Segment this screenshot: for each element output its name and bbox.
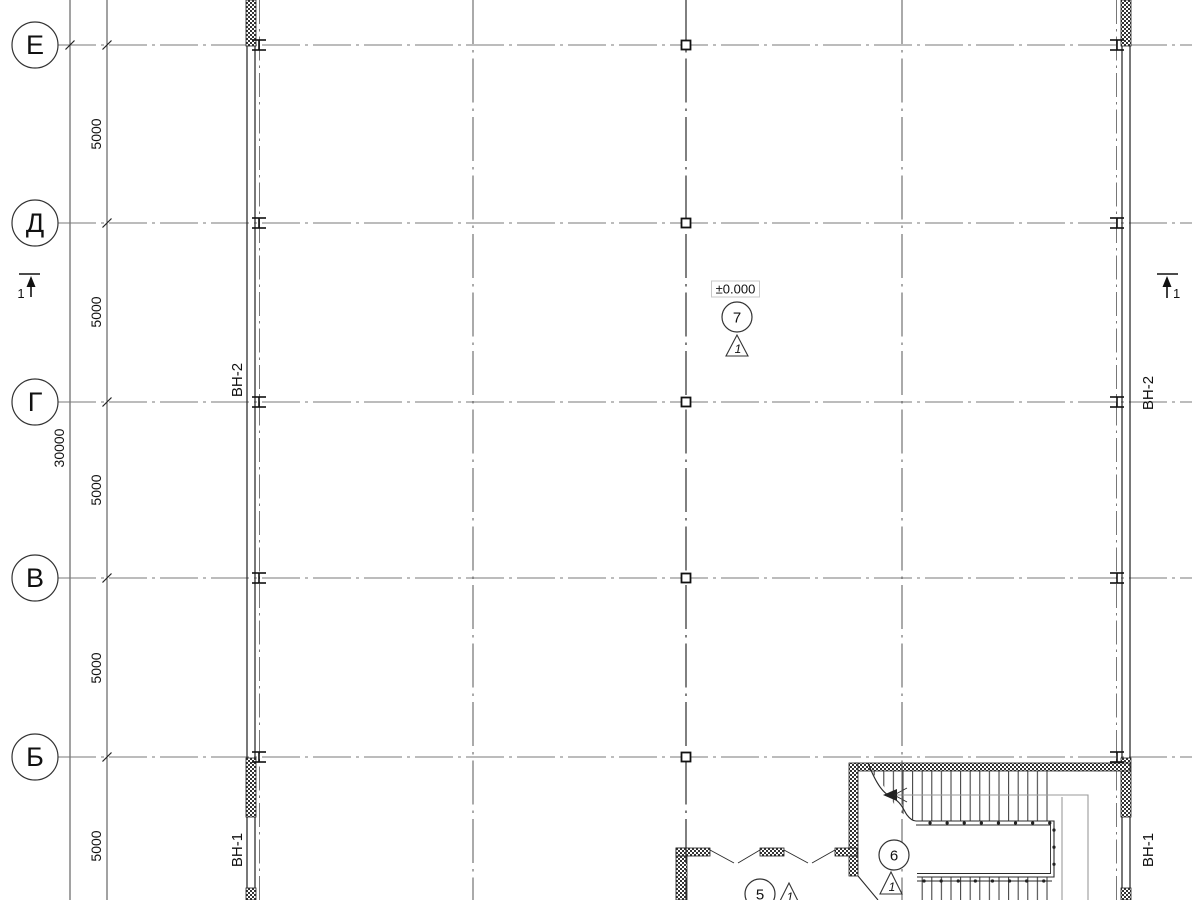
window-pier-1 [676, 848, 710, 856]
column-marker-square [682, 219, 691, 228]
column-marker-square [682, 41, 691, 50]
window-pier-3 [835, 848, 857, 856]
section-mark-left: 1 [17, 274, 40, 301]
dim-segment-1: 5000 [88, 118, 104, 149]
section-mark-right: 1 [1157, 274, 1180, 301]
stair-wall-left [849, 763, 858, 876]
detail-triangle-label: 1 [787, 890, 794, 900]
section-arrowhead-icon [1163, 276, 1172, 287]
stairwell-edge-inner [916, 825, 1051, 874]
dim-segment-3: 5000 [88, 474, 104, 505]
wall-right-hatch-bottom [1121, 888, 1131, 900]
wall-left-hatch-mid [246, 758, 256, 817]
dim-segment-5: 5000 [88, 830, 104, 861]
floor-plan-canvas: Е Д Г В Б 5000 5000 5000 5000 5000 30000… [0, 0, 1200, 900]
wall-tag-right-lower: ВН-1 [1140, 833, 1157, 867]
section-label-left: 1 [17, 286, 24, 301]
dimension-texts: 5000 5000 5000 5000 5000 30000 [51, 118, 104, 861]
wall-tag-left-lower: ВН-1 [229, 833, 246, 867]
column-marker-square [682, 753, 691, 762]
detail-triangle-label: 1 [735, 342, 742, 356]
axis-label-g: Г [28, 387, 43, 417]
level-mark-group: ±0.000 7 1 [712, 281, 760, 356]
axis-label-b: Б [26, 742, 44, 772]
stair-lower-flight-treads [917, 877, 1052, 900]
level-mark-value: ±0.000 [716, 282, 756, 297]
dim-segment-2: 5000 [88, 296, 104, 327]
column-marker-square [682, 574, 691, 583]
window-pier-2 [760, 848, 784, 856]
window-sash-line [812, 850, 835, 863]
window-sash-line [784, 850, 808, 863]
column-marker-square [682, 398, 691, 407]
door-swing-line [858, 876, 878, 900]
wall-left-hatch-bottom [246, 888, 256, 900]
stairwell-edge-outer [916, 821, 1054, 877]
stair-wall-top [855, 763, 1130, 771]
dim-segment-4: 5000 [88, 652, 104, 683]
section-arrowhead-icon [27, 276, 36, 287]
node-label-6: 6 [890, 848, 898, 865]
window-sash-line [738, 850, 760, 863]
wall-left [246, 0, 260, 900]
wall-tag-left-upper: ВН-2 [229, 363, 246, 397]
axis-label-v: В [26, 563, 44, 593]
axis-bubbles: Е Д Г В Б [12, 22, 58, 780]
wall-tag-right-upper: ВН-2 [1140, 376, 1157, 410]
node-label-7: 7 [733, 310, 741, 327]
stair-node-group: 6 1 [879, 840, 909, 894]
wall-left-hatch-top [246, 0, 256, 46]
window-node-group: 5 1 [745, 879, 800, 900]
axis-label-d: Д [26, 208, 44, 238]
detail-triangle-label: 1 [889, 880, 896, 894]
floor-plan-drawing: Е Д Г В Б 5000 5000 5000 5000 5000 30000… [0, 0, 1200, 900]
axis-label-e: Е [26, 30, 44, 60]
section-label-right: 1 [1173, 286, 1180, 301]
dim-total: 30000 [51, 428, 67, 467]
wall-right-hatch-top [1121, 0, 1131, 46]
node-label-5: 5 [756, 887, 764, 900]
window-sash-line [710, 850, 734, 863]
